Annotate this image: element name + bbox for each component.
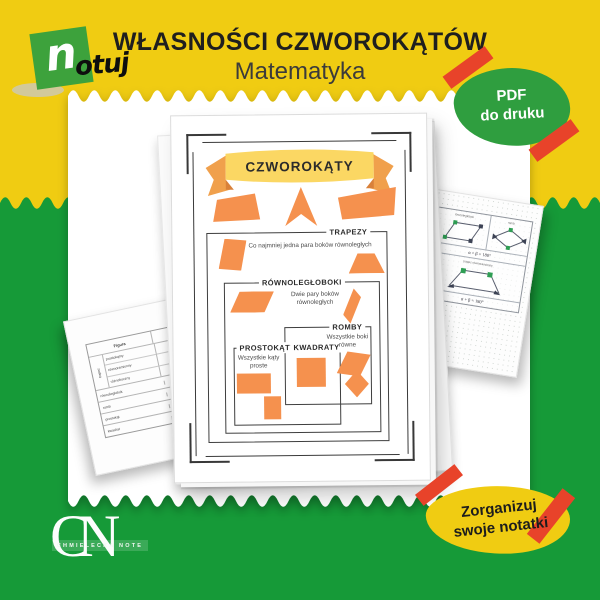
pdf-badge-line1: PDF	[496, 86, 527, 106]
frame-line	[202, 140, 396, 143]
page-subtitle: Matematyka	[110, 58, 490, 86]
rhombus-diagram	[487, 223, 531, 255]
pdf-badge-text: PDF do druku	[446, 55, 579, 158]
rownolegloboki-description: Dwie pary boków równoległych	[282, 291, 348, 307]
pdf-badge-line2: do druku	[480, 104, 545, 126]
romby-label: ROMBY	[329, 321, 365, 332]
prostokaty-label: PROSTOKĄTY	[236, 342, 298, 354]
rownolegloboki-label: RÓWNOLEGŁOBOKI	[259, 277, 345, 289]
header: WŁASNOŚCI CZWOROKĄTÓW Matematyka	[110, 28, 490, 86]
frame-line	[192, 152, 196, 456]
cn-logo-letters: C N	[50, 506, 154, 566]
worksheet-preview: CZWOROKĄTY TRAPEZY RÓWNOLEGŁOBOKI ROMBY …	[170, 113, 431, 484]
ribbon-title: CZWOROKĄTY	[245, 158, 353, 174]
poster: n otuj WŁASNOŚCI CZWOROKĄTÓW Matematyka …	[0, 0, 600, 600]
pdf-badge: PDF do druku	[448, 58, 576, 154]
rectangle-shape	[237, 373, 271, 393]
trapezy-label: TRAPEZY	[326, 226, 370, 237]
trapezy-description: Co najmniej jedna para boków równoległyc…	[248, 241, 382, 250]
square-shape	[297, 358, 326, 387]
quadrilateral-shape	[338, 187, 396, 220]
frame-line	[404, 150, 408, 454]
dart-shape	[285, 187, 317, 226]
cn-logo: C N CHMIELECKA NOTE	[50, 506, 154, 582]
rectangle-shape	[264, 396, 281, 419]
prostokaty-description: Wszystkie kąty proste	[238, 354, 280, 370]
frame-line	[206, 454, 400, 457]
parallelogram-diagram	[437, 215, 487, 248]
quadrilateral-shapes	[203, 184, 397, 232]
cn-logo-name: CHMIELECKA NOTE	[52, 540, 148, 551]
page-title: WŁASNOŚCI CZWOROKĄTÓW	[110, 28, 490, 57]
quadrilateral-shape	[213, 193, 260, 221]
romby-description: Wszystkie boki równe	[326, 333, 368, 349]
organize-badge-text: Zorganizuj swoje notatki	[418, 472, 581, 566]
organize-badge: Zorganizuj swoje notatki	[422, 480, 578, 558]
rhombus-cell: romb	[486, 216, 532, 256]
